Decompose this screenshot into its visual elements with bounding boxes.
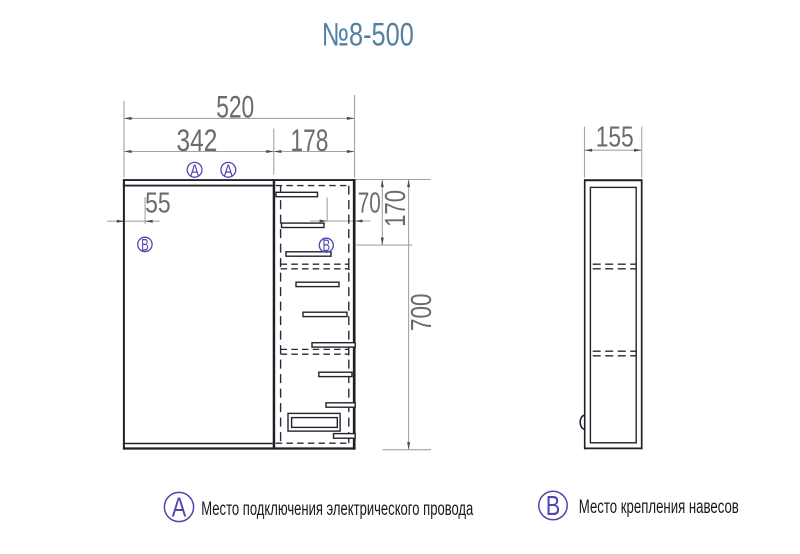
- svg-text:342: 342: [177, 122, 218, 158]
- svg-text:178: 178: [291, 122, 329, 158]
- svg-text:Место крепления навесов: Место крепления навесов: [579, 497, 739, 518]
- svg-text:55: 55: [145, 188, 171, 220]
- svg-text:70: 70: [358, 187, 381, 219]
- svg-text:Место подключения электрическо: Место подключения электрического провода: [201, 499, 473, 520]
- svg-text:A: A: [190, 162, 199, 180]
- svg-text:B: B: [141, 236, 149, 254]
- svg-text:170: 170: [380, 190, 412, 227]
- svg-text:B: B: [546, 490, 561, 521]
- svg-text:A: A: [172, 492, 187, 523]
- svg-text:155: 155: [596, 121, 634, 153]
- svg-text:A: A: [224, 162, 233, 180]
- svg-text:700: 700: [406, 293, 438, 331]
- svg-text:520: 520: [216, 89, 254, 125]
- svg-text:№8-500: №8-500: [322, 16, 414, 52]
- svg-text:B: B: [323, 237, 331, 255]
